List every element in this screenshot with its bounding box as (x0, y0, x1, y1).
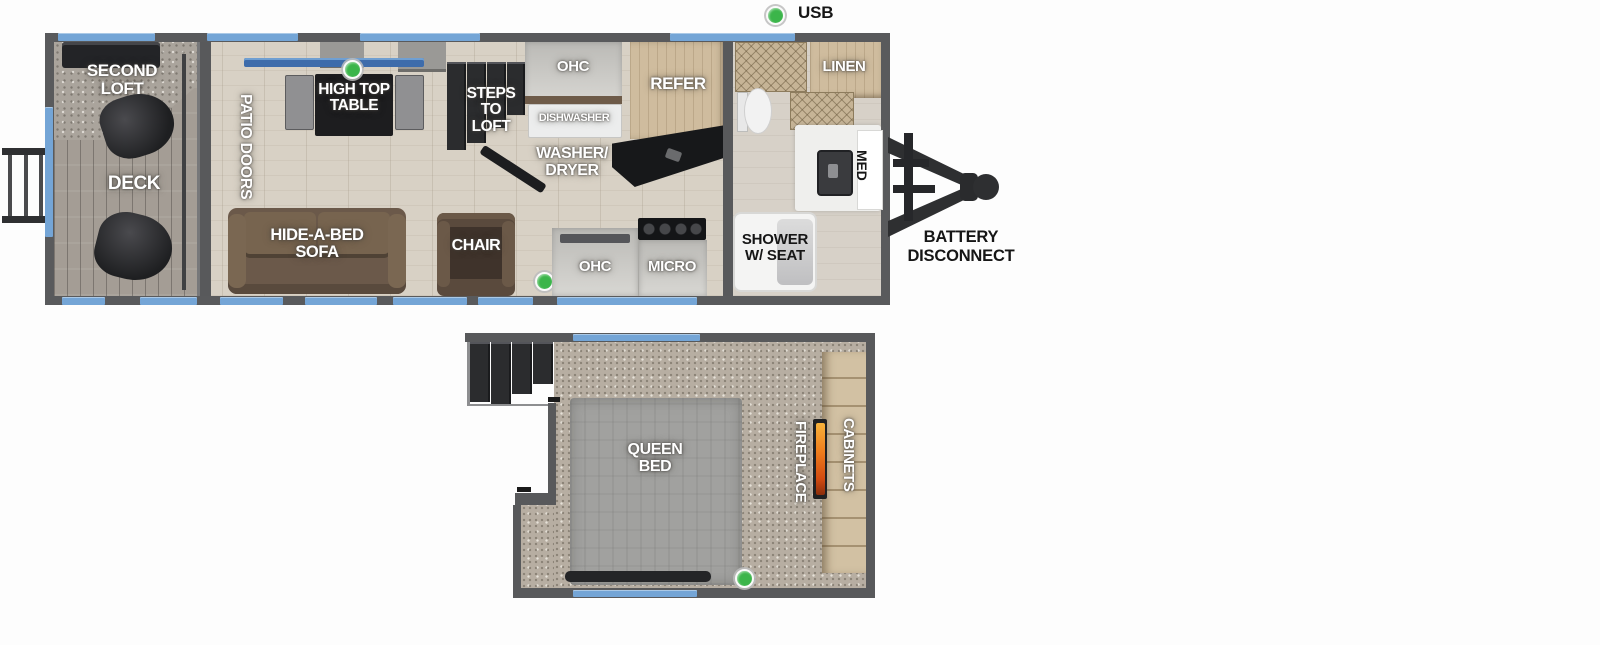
refer-label: REFER (638, 75, 718, 93)
usb-legend-dot-icon (766, 6, 785, 25)
loft-stairs (467, 342, 554, 406)
linen-label: LINEN (812, 59, 876, 75)
window (207, 33, 298, 41)
window (305, 297, 377, 305)
cabinets-label: CABINETS (840, 418, 856, 491)
window (573, 590, 697, 597)
window (478, 297, 533, 305)
deck-door-window (45, 107, 53, 237)
loft-wall-jut (515, 493, 556, 505)
dishwasher-label: DISHWASHER (528, 113, 620, 125)
deck-label: DECK (94, 174, 174, 194)
door-frame-mark (517, 487, 531, 492)
steps-to-loft-label: STEPS TO LOFT (460, 86, 522, 135)
door-frame-mark (548, 397, 560, 402)
shower-label: SHOWER W/ SEAT (737, 232, 813, 264)
deck-railing-bottom (2, 216, 46, 223)
dinette-window-ledge (244, 58, 424, 67)
window (573, 334, 700, 341)
rv-floorplan-diagram: USB SECOND LOFT DECK PATIO DOORS HIGH TO… (0, 0, 1600, 645)
fireplace-label: FIREPLACE (792, 421, 808, 502)
window (670, 33, 795, 41)
deck-inner-railing (182, 54, 186, 290)
washer-dryer-label: WASHER/ DRYER (520, 146, 624, 180)
deck-patio-wall (197, 42, 211, 296)
kitchen-counter-edge (525, 96, 622, 104)
railing-post (39, 155, 43, 216)
usb-port-dot-icon (343, 60, 362, 79)
high-top-table-label: HIGH TOP TABLE (309, 82, 399, 115)
chair-label: CHAIR (440, 238, 512, 255)
window (220, 297, 283, 305)
bed-foot-rail (565, 571, 711, 582)
loft-left-wall-lower (513, 505, 521, 588)
galley-ohc-label: OHC (566, 259, 624, 275)
sofa-label: HIDE-A-BED SOFA (258, 227, 376, 262)
loft-left-wall-upper (548, 403, 556, 500)
window (360, 33, 480, 41)
bathroom-wall (723, 42, 733, 296)
usb-port-dot-icon (735, 569, 754, 588)
railing-post (8, 155, 12, 216)
window (140, 297, 197, 305)
queen-bed (570, 398, 742, 585)
stove-cooktop (638, 218, 706, 240)
window (62, 297, 105, 305)
sink-faucet-icon (828, 164, 838, 178)
second-loft-label: SECOND LOFT (70, 62, 174, 98)
patio-doors-label: PATIO DOORS (236, 94, 253, 199)
toilet (744, 88, 772, 134)
loft-floor-alcove (521, 505, 554, 588)
window (557, 297, 697, 305)
queen-bed-label: QUEEN BED (605, 442, 705, 476)
bath-cabinet (735, 42, 807, 92)
deck-railing-top (2, 148, 46, 155)
dinette-bench-right (395, 75, 424, 130)
usb-legend-label: USB (798, 4, 848, 22)
loft-floorplan: QUEEN BED FIREPLACE CABINETS (465, 333, 875, 600)
kitchen-ohc-label: OHC (543, 59, 603, 75)
dinette-cabinet (398, 42, 446, 72)
loft-right-wall (866, 333, 875, 598)
fireplace-flame (816, 423, 825, 495)
battery-disconnect-label: BATTERY DISCONNECT (902, 228, 1020, 266)
micro-label: MICRO (638, 259, 706, 275)
window (58, 33, 155, 41)
window (393, 297, 467, 305)
main-floorplan: SECOND LOFT DECK PATIO DOORS HIGH TOP TA… (45, 33, 890, 305)
railing-post (24, 155, 28, 216)
med-label: MED (854, 150, 869, 181)
galley-sink (560, 234, 630, 243)
